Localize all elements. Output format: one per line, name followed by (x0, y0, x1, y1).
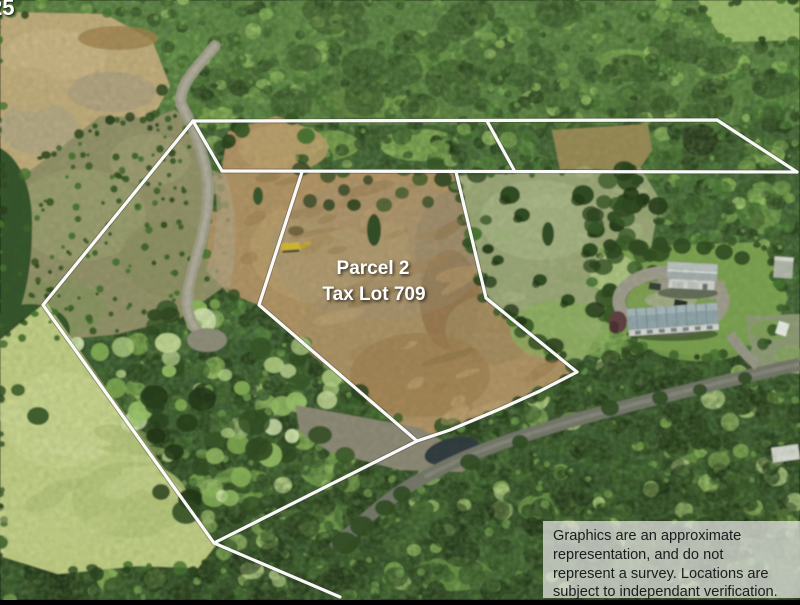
svg-text:Tax Lot 709: Tax Lot 709 (322, 284, 425, 305)
svg-text:Parcel 2: Parcel 2 (337, 258, 410, 279)
svg-text:25: 25 (0, 0, 14, 20)
svg-text:Graphics are an approximate: Graphics are an approximate (553, 528, 741, 544)
svg-text:represent a survey. Locations: represent a survey. Locations are (553, 566, 769, 582)
svg-text:subject to independant verific: subject to independant verification. (553, 584, 778, 600)
svg-text:representation, and do not: representation, and do not (553, 547, 723, 563)
